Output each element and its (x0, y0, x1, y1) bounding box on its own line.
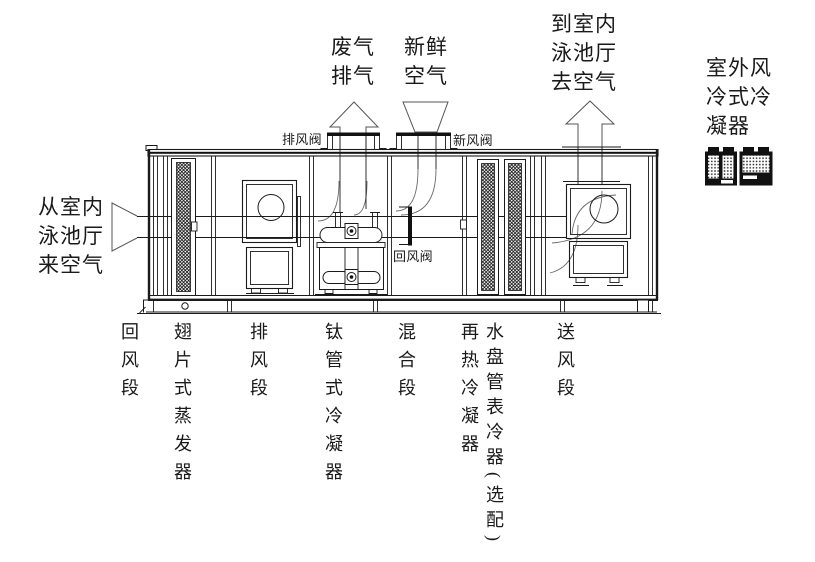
supply-fan-inlet (590, 195, 618, 223)
airflow-arc (396, 169, 418, 211)
water-coil (505, 160, 526, 295)
reheat-condenser-coil (478, 160, 499, 295)
base-frame (137, 300, 661, 314)
section-label-supply-section: 送风段 (556, 322, 574, 406)
section-label-mixing-section: 混合段 (397, 322, 415, 406)
label-fresh-air-damper: 新风阀 (453, 133, 493, 148)
label-fresh-air-line1: 新鲜 (404, 33, 448, 62)
label-fresh-air: 新鲜 空气 (404, 33, 448, 91)
airflow-arc (354, 181, 367, 215)
label-air-to-pool-line1: 到室内 (551, 10, 617, 39)
label-outdoor-condenser-line2: 冷式冷 (706, 83, 772, 112)
outdoor-condenser-icon (705, 147, 773, 186)
roof-band (150, 152, 656, 154)
label-waste-exhaust-line2: 排气 (331, 62, 375, 91)
label-fresh-air-line2: 空气 (404, 62, 448, 91)
section-label-exhaust-section: 排风段 (249, 322, 267, 406)
unit-casing (146, 146, 658, 301)
label-air-to-pool-line3: 去空气 (551, 68, 617, 97)
section-label-reheat-condenser: 再热冷凝器 (460, 322, 478, 462)
label-air-to-pool: 到室内 泳池厅 去空气 (551, 10, 617, 97)
label-return-air-damper: 回风阀 (393, 249, 433, 264)
airflow-arc (572, 195, 616, 234)
supply-air-arrow (566, 101, 614, 148)
section-label-return-air-section: 回风段 (120, 322, 138, 406)
supply-fan (563, 182, 631, 286)
fresh-air-funnel (403, 102, 448, 132)
return-air-damper (399, 207, 412, 246)
titanium-condenser-compressor (315, 213, 387, 295)
section-label-titanium-condenser: 钛管式冷凝器 (324, 322, 342, 490)
label-waste-exhaust-air: 废气 排气 (331, 33, 375, 91)
section-label-water-coil-optional: 水盘管表冷器(选配) (485, 322, 503, 548)
drain-port (182, 303, 188, 309)
exhaust-fan (243, 181, 301, 294)
label-air-from-pool: 从室内 泳池厅 来空气 (38, 193, 104, 280)
base-foot (638, 300, 649, 312)
label-air-from-pool-line1: 从室内 (38, 193, 104, 222)
ahu-diagram-page: 从室内 泳池厅 来空气 废气 排气 新鲜 空气 到室内 泳池厅 去空气 室外风 … (0, 0, 815, 562)
exhaust-air-arrow (330, 102, 378, 150)
label-outdoor-condenser-line1: 室外风 (706, 54, 772, 83)
label-air-to-pool-line2: 泳池厅 (551, 39, 617, 68)
label-air-from-pool-line2: 泳池厅 (38, 222, 104, 251)
label-outdoor-condenser-line3: 凝器 (706, 112, 772, 141)
return-air-inlet-funnel (112, 203, 137, 251)
label-outdoor-condenser: 室外风 冷式冷 凝器 (706, 54, 772, 141)
section-label-finned-evaporator: 翅片式蒸发器 (173, 322, 191, 490)
label-air-from-pool-line3: 来空气 (38, 251, 104, 280)
label-waste-exhaust-line1: 废气 (331, 33, 375, 62)
label-exhaust-damper: 排风阀 (282, 132, 322, 147)
